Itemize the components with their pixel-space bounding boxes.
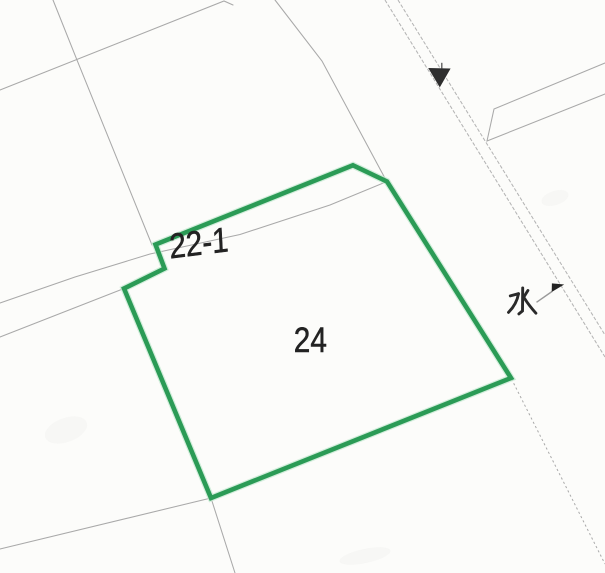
svg-text:22-1: 22-1 — [168, 220, 229, 266]
svg-text:24: 24 — [294, 321, 327, 360]
